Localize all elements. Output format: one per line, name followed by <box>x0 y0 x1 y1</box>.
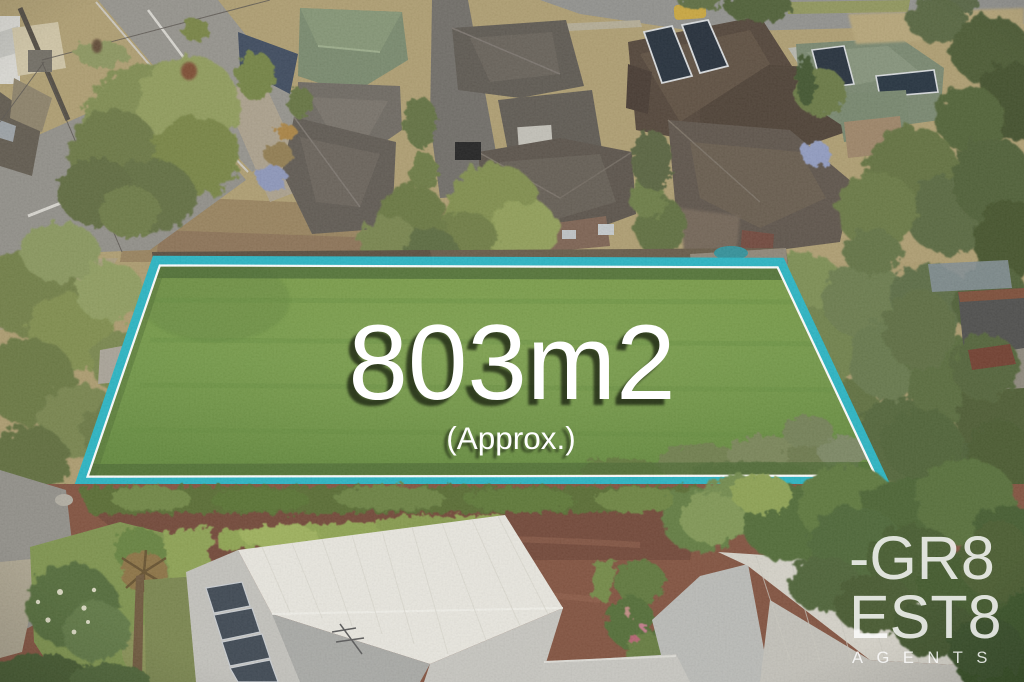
svg-text:EST8: EST8 <box>849 583 1002 651</box>
svg-text:(Approx.): (Approx.) <box>446 420 576 456</box>
svg-text:AGENTS: AGENTS <box>852 649 1001 667</box>
svg-text:803m2: 803m2 <box>348 302 675 422</box>
svg-text:-GR8: -GR8 <box>849 524 995 592</box>
